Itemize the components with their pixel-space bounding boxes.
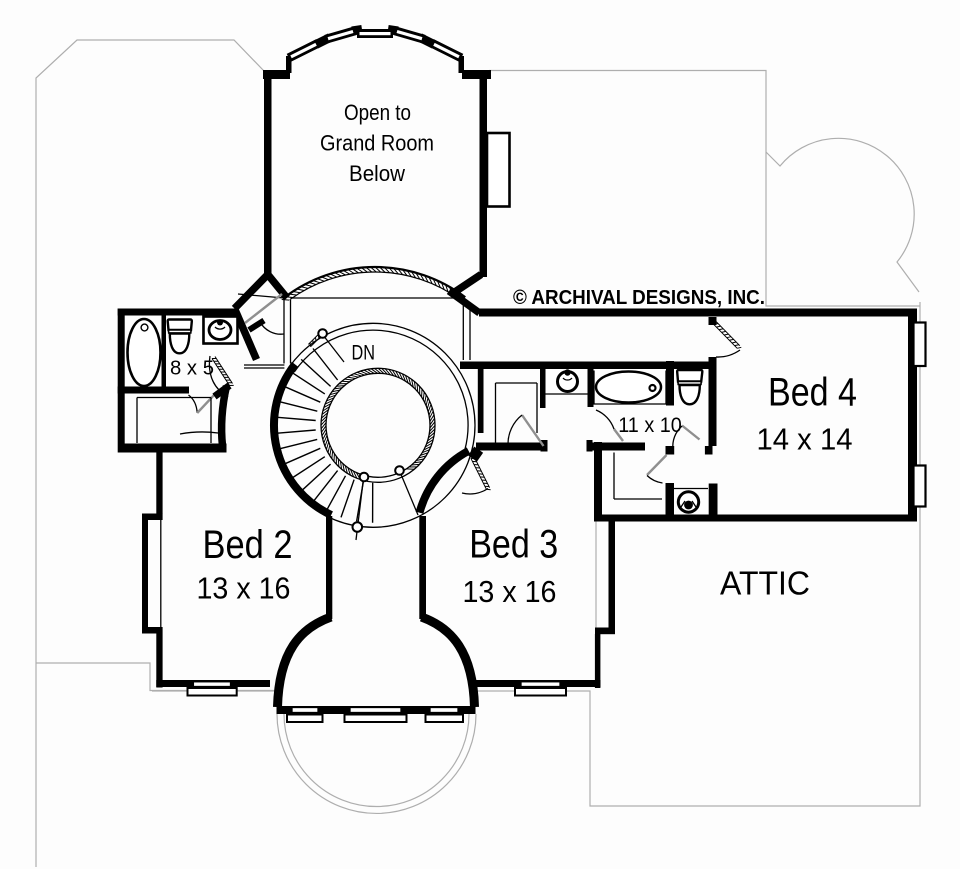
svg-text:13 x 16: 13 x 16 [463, 574, 557, 609]
svg-text:13 x 16: 13 x 16 [197, 571, 291, 606]
svg-text:Bed 3: Bed 3 [469, 523, 558, 567]
svg-text:Below: Below [349, 161, 405, 186]
svg-text:14 x 14: 14 x 14 [757, 422, 853, 457]
svg-text:Bed 4: Bed 4 [768, 371, 857, 415]
svg-text:DN: DN [352, 342, 376, 365]
svg-text:Open to: Open to [344, 100, 411, 125]
svg-text:8 x 5: 8 x 5 [170, 357, 214, 379]
svg-text:Grand Room: Grand Room [320, 131, 434, 156]
svg-text:ATTIC: ATTIC [720, 565, 810, 602]
svg-text:11 x 10: 11 x 10 [618, 414, 682, 437]
svg-text:© ARCHIVAL DESIGNS, INC.: © ARCHIVAL DESIGNS, INC. [513, 286, 765, 309]
svg-text:Bed 2: Bed 2 [203, 523, 293, 567]
